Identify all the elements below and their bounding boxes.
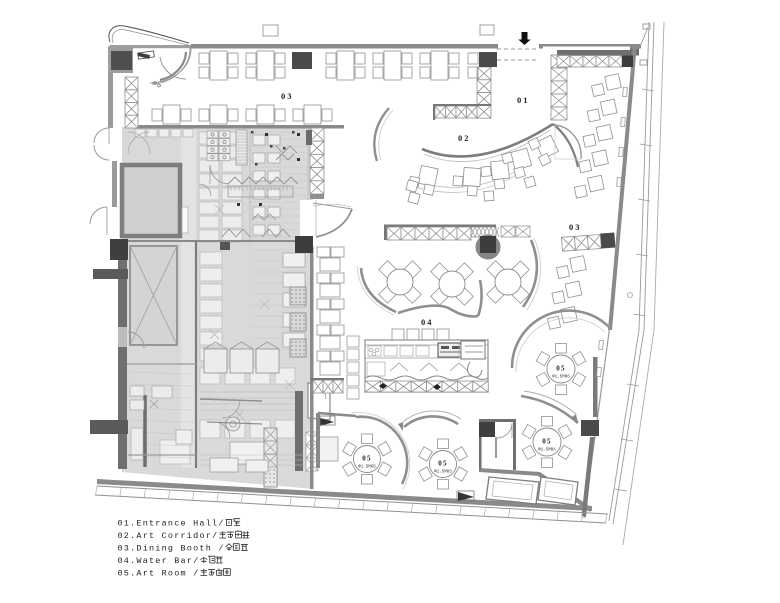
- svg-text:Φ1.5M0A: Φ1.5M0A: [538, 448, 556, 453]
- svg-text:05: 05: [542, 438, 551, 446]
- svg-text:Φ1.5M66: Φ1.5M66: [358, 465, 376, 470]
- svg-text:05.Art Room /: 05.Art Room /: [118, 569, 200, 579]
- svg-text:02: 02: [458, 133, 471, 143]
- svg-text:04: 04: [421, 317, 434, 327]
- svg-text:05: 05: [438, 460, 447, 468]
- svg-text:Φ1.5M06: Φ1.5M06: [552, 375, 570, 380]
- svg-text:02.Art Corridor/: 02.Art Corridor/: [118, 531, 219, 541]
- svg-text:03: 03: [281, 91, 294, 101]
- svg-text:01: 01: [517, 95, 530, 105]
- svg-text:01.Entrance Hall/: 01.Entrance Hall/: [118, 519, 225, 529]
- svg-text:05: 05: [556, 365, 565, 373]
- svg-text:05: 05: [362, 455, 371, 463]
- svg-text:04.Water Bar/: 04.Water Bar/: [118, 556, 200, 566]
- svg-text:03: 03: [569, 222, 582, 232]
- svg-text:Φ1.5M03: Φ1.5M03: [434, 470, 452, 475]
- svg-text:03.Dining Booth /: 03.Dining Booth /: [118, 544, 225, 554]
